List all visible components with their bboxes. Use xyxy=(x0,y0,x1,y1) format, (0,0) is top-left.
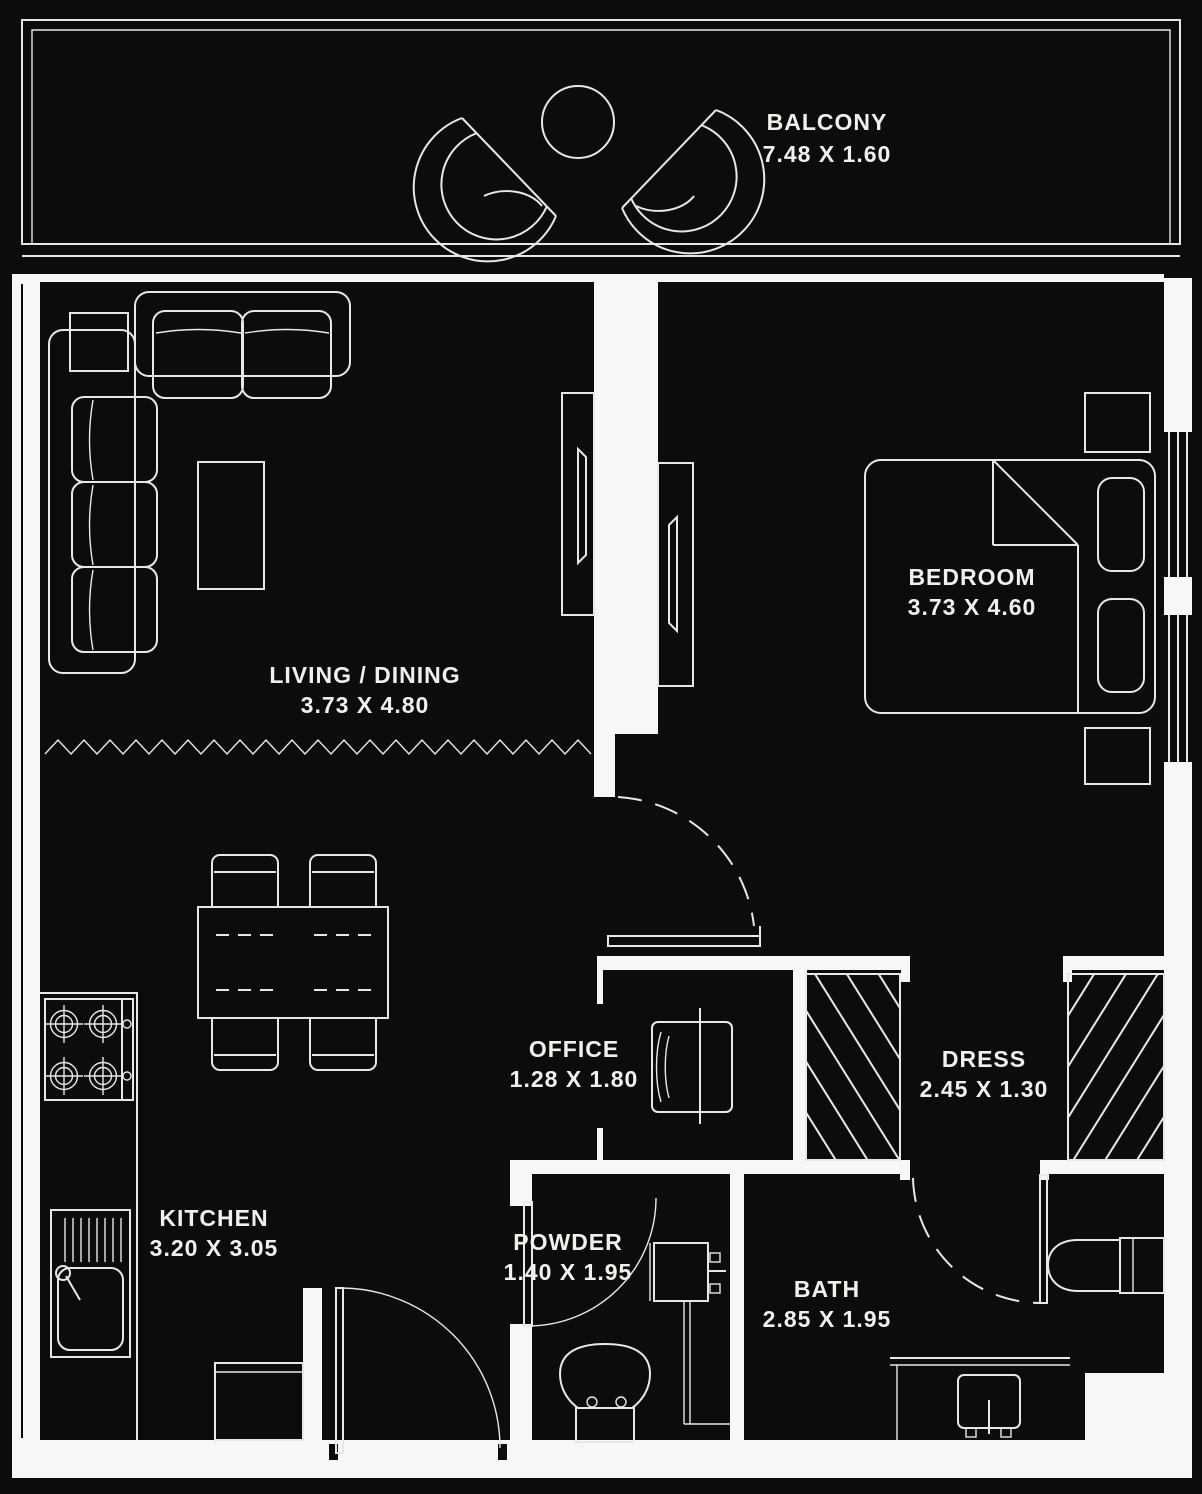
stove xyxy=(45,999,133,1100)
bedroom-door xyxy=(608,797,760,947)
sofa-left xyxy=(49,330,157,673)
kitchen-appliance xyxy=(215,1363,303,1440)
dining-table xyxy=(198,907,388,1018)
balcony-chair-left xyxy=(414,118,556,261)
nightstand-bottom xyxy=(1085,728,1150,784)
kitchen-label: KITCHEN xyxy=(159,1205,268,1231)
nightstand-top xyxy=(1085,393,1150,452)
bath-dims: 2.85 X 1.95 xyxy=(763,1306,892,1332)
balcony-dims: 7.48 X 1.60 xyxy=(763,141,892,167)
balcony-chair-right xyxy=(622,110,764,253)
powder-toilet xyxy=(560,1344,650,1442)
bedroom-dims: 3.73 X 4.60 xyxy=(908,594,1037,620)
wardrobe-hatch-left xyxy=(806,974,900,1160)
wardrobe-hatch-right xyxy=(1068,974,1164,1160)
bath-toilet xyxy=(1048,1238,1164,1293)
bedroom-label: BEDROOM xyxy=(908,564,1035,590)
bedroom-window xyxy=(1164,432,1192,762)
entry-door xyxy=(336,1288,500,1453)
living-dining-label: LIVING / DINING xyxy=(269,662,460,688)
tv-unit-bedroom xyxy=(658,463,693,686)
office-dims: 1.28 X 1.80 xyxy=(510,1066,639,1092)
balcony-table xyxy=(542,86,614,158)
office-label: OFFICE xyxy=(529,1036,619,1062)
bath-label: BATH xyxy=(794,1276,860,1302)
balcony-label: BALCONY xyxy=(767,109,888,135)
floor-break-zigzag xyxy=(45,740,591,754)
tv-unit-living xyxy=(562,393,594,615)
sofa-top xyxy=(135,292,350,398)
bath-door xyxy=(913,1175,1047,1303)
office-desk-chair xyxy=(652,1008,732,1124)
dress-dims: 2.45 X 1.30 xyxy=(920,1076,1049,1102)
powder-label: POWDER xyxy=(513,1229,623,1255)
dress-label: DRESS xyxy=(942,1046,1026,1072)
coffee-table xyxy=(198,462,264,589)
powder-dims: 1.40 X 1.95 xyxy=(504,1259,633,1285)
floor-plan: BALCONY 7.48 X 1.60 LIVING / DINING 3.73… xyxy=(0,0,1202,1494)
kitchen-dims: 3.20 X 3.05 xyxy=(150,1235,279,1261)
balcony-outline xyxy=(22,20,1180,256)
living-dining-dims: 3.73 X 4.80 xyxy=(301,692,430,718)
bath-vanity xyxy=(890,1358,1070,1440)
kitchen-sink xyxy=(51,1210,130,1357)
floor-plan-svg: BALCONY 7.48 X 1.60 LIVING / DINING 3.73… xyxy=(0,0,1202,1494)
powder-vanity xyxy=(650,1243,730,1424)
corner-table xyxy=(70,313,128,371)
walls xyxy=(12,274,1192,1478)
